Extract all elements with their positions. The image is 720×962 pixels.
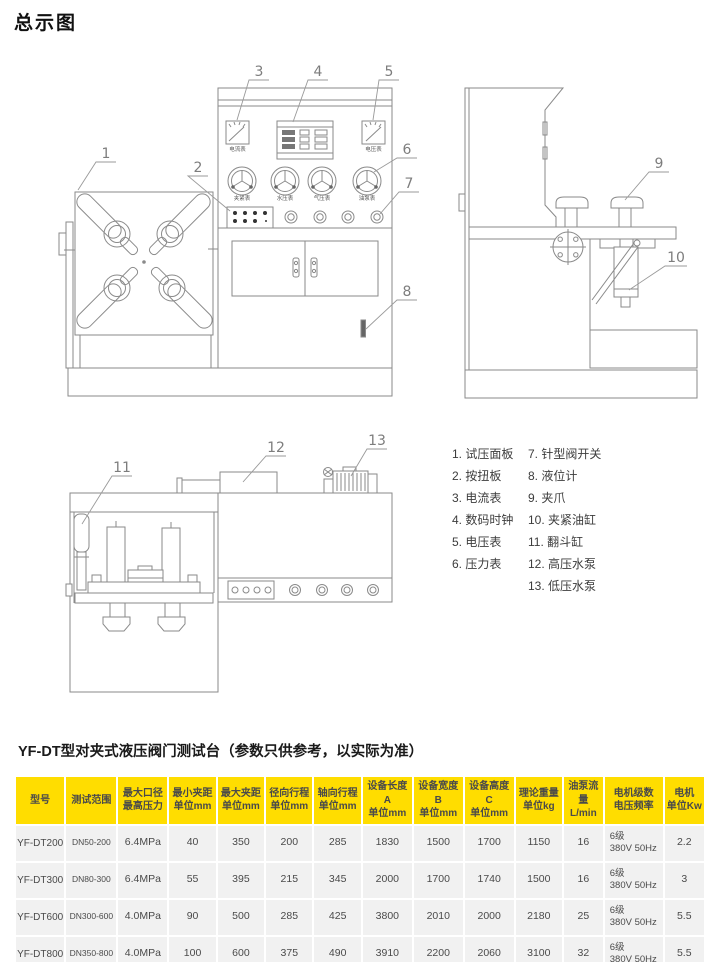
spec-cell: 425 <box>314 900 360 935</box>
spec-cell: 4.0MPa <box>118 937 167 962</box>
spec-cell: 2000 <box>465 900 514 935</box>
callout-13: 13 <box>368 433 386 449</box>
spec-row: YF-DT200DN50-2006.4MPa403502002851830150… <box>16 826 704 861</box>
spec-cell: 2010 <box>414 900 463 935</box>
spec-col-header: 电机级数电压频率 <box>605 777 663 824</box>
spec-table-head-row: 型号测试范围最大口径最高压力最小夹距单位mm最大夹距单位mm径向行程单位mm轴向… <box>16 777 704 824</box>
spec-cell: 350 <box>218 826 264 861</box>
spec-cell: YF-DT200 <box>16 826 64 861</box>
spec-cell: 1830 <box>363 826 412 861</box>
callout-12: 12 <box>267 440 285 456</box>
spec-cell: DN50-200 <box>66 826 116 861</box>
spec-cell: 500 <box>218 900 264 935</box>
spec-row: YF-DT800DN350-8004.0MPa10060037549039102… <box>16 937 704 962</box>
spec-cell: 1700 <box>465 826 514 861</box>
spec-cell: 1150 <box>516 826 562 861</box>
cabinet-doors <box>232 241 378 296</box>
legend-item: 4. 数码时钟 <box>452 509 513 531</box>
spec-cell: 200 <box>266 826 312 861</box>
spec-cell: 3 <box>665 863 704 898</box>
spec-col-header: 径向行程单位mm <box>266 777 312 824</box>
pump-cabinet <box>218 493 392 602</box>
spec-col-header: 轴向行程单位mm <box>314 777 360 824</box>
spec-cell: 375 <box>266 937 312 962</box>
spec-cell: 32 <box>564 937 603 962</box>
legend-item: 12. 高压水泵 <box>528 553 601 575</box>
spec-cell: 2000 <box>363 863 412 898</box>
legend-item: 5. 电压表 <box>452 531 513 553</box>
gauge-label-water: 水压表 <box>277 194 294 202</box>
spec-cell: 490 <box>314 937 360 962</box>
spec-cell: 285 <box>266 900 312 935</box>
spec-cell: 3100 <box>516 937 562 962</box>
spec-col-header: 设备高度C单位mm <box>465 777 514 824</box>
spec-col-header: 设备长度A单位mm <box>363 777 412 824</box>
spec-col-header: 最大口径最高压力 <box>118 777 167 824</box>
spec-cell: 2.2 <box>665 826 704 861</box>
spec-cell: 6级 380V 50Hz <box>605 900 663 935</box>
spec-cell: 215 <box>266 863 312 898</box>
spec-cell: 1500 <box>414 826 463 861</box>
legend-item: 13. 低压水泵 <box>528 575 601 597</box>
spec-cell: 6级 380V 50Hz <box>605 937 663 962</box>
gauge-label-clamp: 夹紧表 <box>234 194 251 202</box>
legend-item: 10. 夹紧油缸 <box>528 509 601 531</box>
spec-col-header: 最大夹距单位mm <box>218 777 264 824</box>
spec-col-header: 油泵流量L/min <box>564 777 603 824</box>
spec-cell: 6级 380V 50Hz <box>605 826 663 861</box>
callout-7: 7 <box>405 176 414 192</box>
spec-cell: 3800 <box>363 900 412 935</box>
spec-document-page: 总示图 <box>0 0 720 962</box>
legend-item: 9. 夹爪 <box>528 487 601 509</box>
spec-cell: 55 <box>169 863 215 898</box>
high-pressure-pump <box>177 472 277 495</box>
legend-item: 8. 液位计 <box>528 465 601 487</box>
spec-cell: DN350-800 <box>66 937 116 962</box>
side-lower-box <box>590 330 697 368</box>
side-back-panel <box>465 88 469 370</box>
side-view-base <box>465 370 697 398</box>
spec-cell: 2200 <box>414 937 463 962</box>
panel-pivot-bracket <box>59 233 66 255</box>
spec-cell: 345 <box>314 863 360 898</box>
callout-10: 10 <box>667 250 685 266</box>
spec-col-header: 设备宽度B单位mm <box>414 777 463 824</box>
front-view-base <box>68 368 392 396</box>
spec-cell: 6级 380V 50Hz <box>605 863 663 898</box>
spec-table-body: YF-DT200DN50-2006.4MPa403502002851830150… <box>16 826 704 962</box>
spec-cell: 5.5 <box>665 900 704 935</box>
spec-row: YF-DT300DN80-3006.4MPa553952153452000170… <box>16 863 704 898</box>
spec-cell: 600 <box>218 937 264 962</box>
spec-cell: 4.0MPa <box>118 900 167 935</box>
ammeter-label: 电流表 <box>229 145 246 153</box>
spec-cell: 6.4MPa <box>118 863 167 898</box>
spec-col-header: 理论重量单位kg <box>516 777 562 824</box>
legend-item: 1. 试压面板 <box>452 443 513 465</box>
spec-cell: 1740 <box>465 863 514 898</box>
callout-4: 4 <box>314 64 323 80</box>
side-cabinet-profile <box>469 88 563 227</box>
low-pressure-pump-motor <box>324 467 378 493</box>
voltmeter-label: 电压表 <box>365 145 382 153</box>
clamp-jaws <box>556 197 643 227</box>
spec-col-header: 电机单位Kw <box>665 777 704 824</box>
pump-view <box>66 467 392 692</box>
spec-cell: 2060 <box>465 937 514 962</box>
spec-cell: 2180 <box>516 900 562 935</box>
legend-item: 6. 压力表 <box>452 553 513 575</box>
callout-2: 2 <box>194 160 203 176</box>
spec-cell: 1500 <box>516 863 562 898</box>
spec-cell: 285 <box>314 826 360 861</box>
legend-col-2: 7. 针型阀开关8. 液位计9. 夹爪10. 夹紧油缸11. 翻斗缸12. 高压… <box>528 443 601 597</box>
gauge-label-oil: 油泵表 <box>359 194 376 202</box>
gauge-label-air: 气压表 <box>314 194 331 202</box>
side-view <box>459 88 697 398</box>
liquid-level-gauge <box>361 320 366 337</box>
spec-cell: 40 <box>169 826 215 861</box>
spec-cell: 25 <box>564 900 603 935</box>
spec-row: YF-DT600DN300-6004.0MPa90500285425380020… <box>16 900 704 935</box>
callout-11: 11 <box>113 460 131 476</box>
callout-6: 6 <box>403 142 412 158</box>
callout-9: 9 <box>655 156 664 172</box>
spec-cell: 1700 <box>414 863 463 898</box>
spec-cell: YF-DT800 <box>16 937 64 962</box>
spec-cell: 5.5 <box>665 937 704 962</box>
spec-cell: 100 <box>169 937 215 962</box>
legend-item: 2. 按扭板 <box>452 465 513 487</box>
legend-item: 7. 针型阀开关 <box>528 443 601 465</box>
spec-cell: 3910 <box>363 937 412 962</box>
panel-center-dot <box>142 260 146 264</box>
spec-table-title: YF-DT型对夹式液压阀门测试台（参数只供参考，以实际为准） <box>18 740 423 761</box>
spec-table-wrap: 型号测试范围最大口径最高压力最小夹距单位mm最大夹距单位mm径向行程单位mm轴向… <box>14 775 706 962</box>
spec-cell: YF-DT300 <box>16 863 64 898</box>
callout-3: 3 <box>255 64 264 80</box>
spec-cell: 90 <box>169 900 215 935</box>
spec-cell: DN80-300 <box>66 863 116 898</box>
spec-cell: DN300-600 <box>66 900 116 935</box>
spec-col-header: 最小夹距单位mm <box>169 777 215 824</box>
legend-item: 3. 电流表 <box>452 487 513 509</box>
legend-col-1: 1. 试压面板2. 按扭板3. 电流表4. 数码时钟5. 电压表6. 压力表 <box>452 443 513 575</box>
callout-5: 5 <box>385 64 394 80</box>
panel-pivot-post <box>66 222 73 368</box>
spec-cell: 16 <box>564 826 603 861</box>
spec-col-header: 型号 <box>16 777 64 824</box>
legend-item: 11. 翻斗缸 <box>528 531 601 553</box>
spec-cell: 16 <box>564 863 603 898</box>
spec-cell: YF-DT600 <box>16 900 64 935</box>
spec-cell: 395 <box>218 863 264 898</box>
spec-table: 型号测试范围最大口径最高压力最小夹距单位mm最大夹距单位mm径向行程单位mm轴向… <box>14 775 706 962</box>
front-view <box>59 88 392 396</box>
diagram-canvas: 1 2 3 4 5 6 7 8 9 10 11 12 13 电流表 电压表 夹紧… <box>0 0 720 735</box>
spec-col-header: 测试范围 <box>66 777 116 824</box>
callout-8: 8 <box>403 284 412 300</box>
callout-1: 1 <box>102 146 111 162</box>
spec-cell: 6.4MPa <box>118 826 167 861</box>
